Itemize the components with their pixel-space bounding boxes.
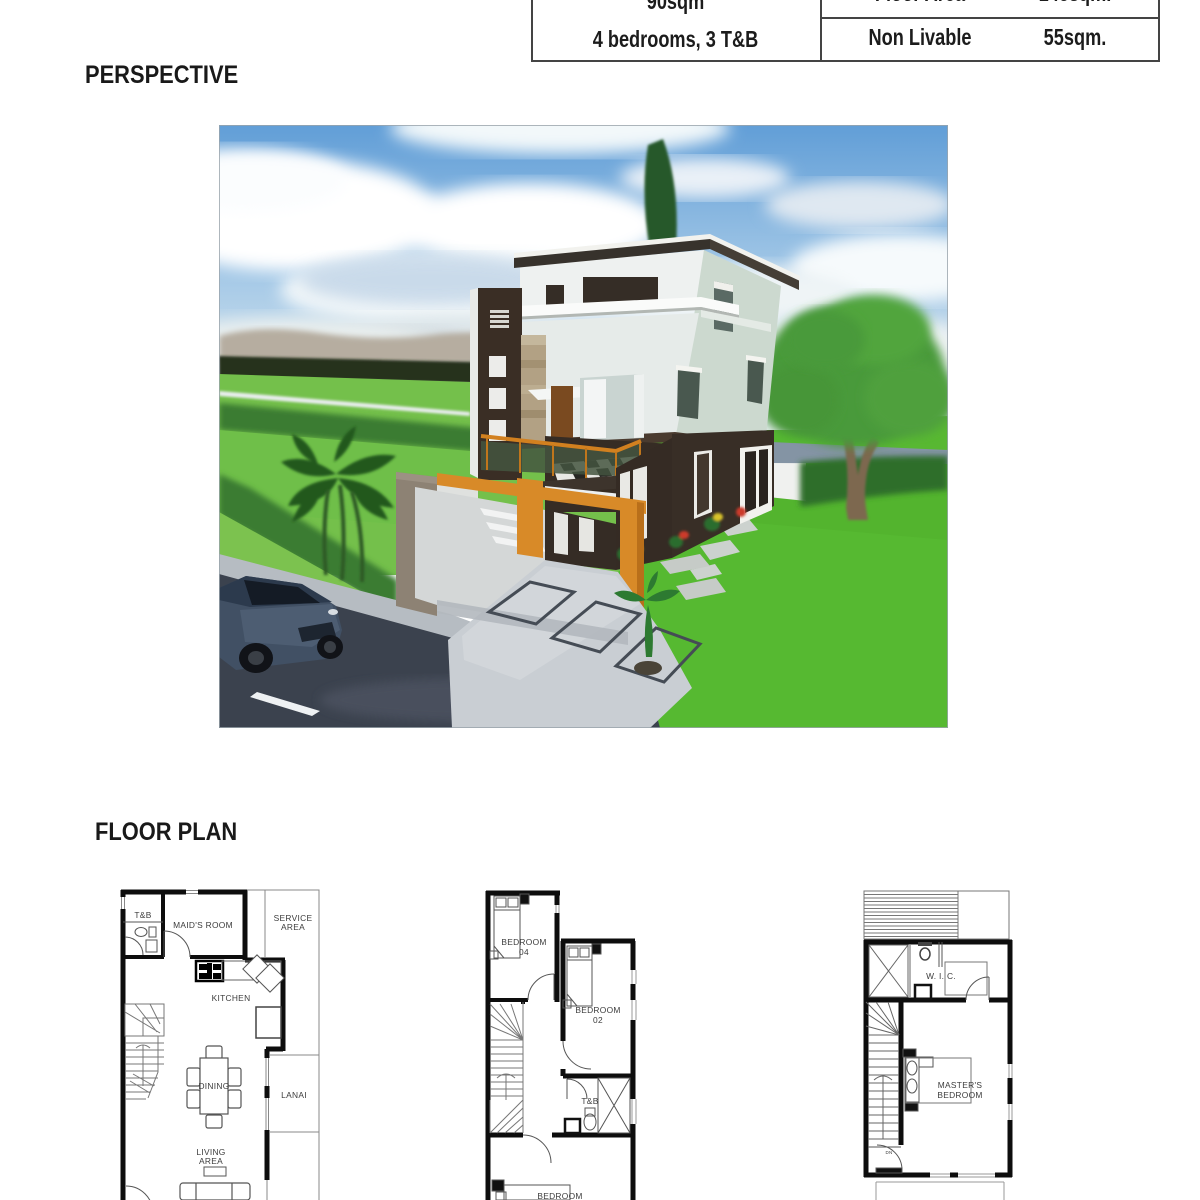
svg-text:04: 04 [519, 947, 529, 957]
svg-text:AREA: AREA [281, 922, 305, 932]
svg-text:MASTER'S: MASTER'S [938, 1080, 983, 1090]
svg-text:KITCHEN: KITCHEN [212, 993, 251, 1003]
svg-text:BEDROOM: BEDROOM [937, 1090, 982, 1100]
svg-text:BEDROOM: BEDROOM [537, 1191, 582, 1200]
svg-text:BEDROOM: BEDROOM [501, 937, 546, 947]
svg-text:T&B: T&B [134, 910, 151, 920]
svg-text:02: 02 [593, 1015, 603, 1025]
svg-text:BEDROOM: BEDROOM [575, 1005, 620, 1015]
svg-text:DINING: DINING [198, 1081, 229, 1091]
svg-text:MAID'S ROOM: MAID'S ROOM [173, 920, 233, 930]
svg-text:DN: DN [885, 1150, 892, 1155]
svg-text:LANAI: LANAI [281, 1090, 307, 1100]
svg-text:T&B: T&B [581, 1096, 598, 1106]
svg-text:AREA: AREA [199, 1156, 223, 1166]
svg-text:W. I. C.: W. I. C. [926, 971, 956, 981]
